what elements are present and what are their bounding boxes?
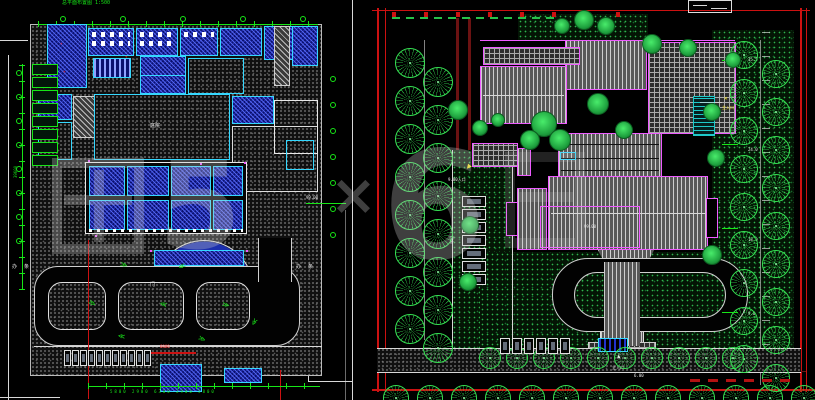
stall-item <box>462 274 486 285</box>
dim-ticks-top <box>38 21 318 27</box>
window-row <box>140 41 174 46</box>
tree-icon <box>757 385 783 400</box>
magenta-dot <box>88 160 90 162</box>
bubble-item <box>180 16 186 22</box>
parking-label: 车位 <box>450 236 454 244</box>
tree-icon <box>730 41 758 69</box>
bubble-item <box>16 190 22 196</box>
bubble-item <box>300 16 306 22</box>
stall-item <box>128 350 135 366</box>
dim-line-left <box>22 64 23 290</box>
tree-icon <box>655 385 681 400</box>
tree-icon <box>423 257 453 287</box>
tree-icon <box>574 10 594 30</box>
building-room <box>180 28 218 56</box>
bubble-item <box>330 76 336 82</box>
west-entrance-arrow-icon: ▼ <box>464 162 473 171</box>
stackblk-item <box>32 155 58 166</box>
redtick-item <box>424 12 428 17</box>
watermark-logo-glyph-partial <box>505 152 585 248</box>
tree-icon <box>423 333 453 363</box>
room-cell <box>89 200 125 230</box>
tree-icon <box>615 121 633 139</box>
room-cell <box>171 166 211 196</box>
building-hatch-strip <box>274 26 290 86</box>
courtyard <box>188 58 244 94</box>
tree-row-line-east <box>760 40 761 385</box>
outlined-room <box>286 140 314 170</box>
tree-icon <box>730 269 758 297</box>
roof-level-note: 99.00 <box>584 225 596 229</box>
red-cross-mark: + <box>125 55 127 59</box>
tree-icon <box>762 364 790 392</box>
hedge-item <box>546 17 554 19</box>
frame-red-right-2 <box>806 8 807 392</box>
stair-block-teal <box>693 96 715 136</box>
lawn-edge-line <box>512 150 513 348</box>
east-entrance-x-icon: ✕ <box>724 96 728 102</box>
dark-red-road-line <box>456 18 459 230</box>
roof-hip-fan <box>598 250 654 274</box>
stall-item <box>536 338 546 354</box>
tree-icon <box>762 60 790 88</box>
tree-icon <box>549 129 571 151</box>
building-room <box>220 28 262 56</box>
roof-joint-line <box>561 158 659 159</box>
terrace-grid <box>472 143 518 167</box>
cad-screenshot: 总平面布置图 1:500 39600 <box>0 0 815 400</box>
utility-building <box>160 364 202 392</box>
roof-inner-outline <box>540 206 640 248</box>
dark-red-road-line <box>468 18 471 230</box>
frame-red-right <box>800 8 802 392</box>
red-cross-mark: + <box>63 70 65 74</box>
flow-arrow-icon: ≫ <box>159 299 168 308</box>
pool-detail <box>560 152 576 160</box>
room-cell <box>89 166 125 196</box>
tree-icon <box>707 149 725 167</box>
window-row <box>89 229 243 232</box>
roof-stripe-mid <box>558 133 662 179</box>
bubble-item <box>330 102 336 108</box>
tree-icon <box>695 347 717 369</box>
flow-arrow-icon: ≫ <box>87 299 97 309</box>
stall-item <box>120 350 127 366</box>
flow-arrow-icon: ≫ <box>249 317 259 327</box>
tree-icon <box>417 385 443 400</box>
stackblk-item <box>32 64 58 75</box>
window-row <box>140 32 174 37</box>
red-road-mark <box>148 352 196 354</box>
tree-icon <box>423 67 453 97</box>
flow-arrow-icon: ≫ <box>197 335 207 344</box>
tree-icon <box>554 18 570 34</box>
magenta-dot <box>95 235 97 237</box>
bubble-item <box>16 94 22 100</box>
stall-item <box>462 235 486 246</box>
magenta-dot <box>200 163 202 165</box>
room-cell <box>127 200 169 230</box>
entrance-stair <box>600 274 644 344</box>
road-island <box>196 282 250 330</box>
stackblk-item <box>32 116 58 127</box>
hedge-item <box>490 17 498 19</box>
hedge-item <box>392 17 400 19</box>
stall-item <box>462 222 486 233</box>
etick-item <box>722 144 738 145</box>
sheet-border-left <box>8 55 9 400</box>
tree-icon <box>383 385 409 400</box>
stall-item <box>136 350 143 366</box>
west-entrance-label: 9.00入口 <box>448 178 466 182</box>
tree-icon <box>791 385 815 400</box>
hedge-item <box>420 17 428 19</box>
red-cross-mark: + <box>60 42 62 46</box>
stall-item <box>88 350 95 366</box>
road-island <box>48 282 106 330</box>
bubble-item <box>16 118 22 124</box>
tree-icon <box>560 347 582 369</box>
tree-icon <box>730 155 758 183</box>
watermark: 5 × 6 <box>0 0 815 400</box>
roof-joint-line <box>561 170 659 171</box>
tree-icon <box>472 120 488 136</box>
roof-stripe-nw <box>480 66 567 124</box>
roof-grid-nw <box>483 47 580 65</box>
oval-island-lawn <box>574 272 726 318</box>
bubble-item <box>330 232 336 238</box>
oval-road <box>552 258 748 332</box>
dim-line-top <box>38 24 318 25</box>
road-loop <box>34 266 300 346</box>
east-dim-3: 9.0 <box>748 312 755 316</box>
red-road-note: 6000 <box>160 345 170 349</box>
tree-icon <box>395 86 425 116</box>
tree-icon <box>689 385 715 400</box>
stamp-dash <box>711 8 727 9</box>
roof-annex <box>517 188 547 250</box>
tree-icon <box>459 273 477 291</box>
car-detail <box>598 338 628 352</box>
redtick-item <box>392 12 396 17</box>
east-lawn <box>712 30 794 348</box>
dim-ticks-bottom <box>88 383 320 389</box>
stall-item <box>548 338 558 354</box>
stackblk-item <box>32 77 58 88</box>
tree-icon <box>423 181 453 211</box>
redtick-item <box>552 12 556 17</box>
tree-icon <box>531 111 557 137</box>
tree-icon <box>762 212 790 240</box>
stall-item <box>144 350 151 366</box>
right-plan-decorations <box>0 0 815 400</box>
stall-item <box>462 196 486 207</box>
reddash-item <box>690 379 700 382</box>
red-line-lower <box>377 371 806 372</box>
road-island <box>118 282 184 330</box>
driveway-ring-fill <box>148 234 260 294</box>
stall-item <box>462 209 486 220</box>
entrance-pad <box>588 342 656 354</box>
sheet-border-right <box>352 0 353 400</box>
bubble-item <box>240 16 246 22</box>
tree-icon <box>730 79 758 107</box>
stackblk-item <box>32 129 58 140</box>
frame-red-top <box>372 10 810 11</box>
south-lawn <box>480 252 780 348</box>
reddash-item <box>708 379 718 382</box>
stackblk-item <box>32 103 58 114</box>
east-court <box>232 126 318 192</box>
stall-item <box>524 338 534 354</box>
hedge-item <box>462 17 470 19</box>
tree-icon <box>587 347 609 369</box>
road-branch <box>258 238 292 282</box>
east-dim-0: 35.5 <box>748 58 758 62</box>
entrance-canopy <box>154 250 244 266</box>
stall-item <box>80 350 87 366</box>
tree-icon <box>395 238 425 268</box>
lawn-edge-line <box>452 150 453 348</box>
tree-icon <box>485 385 511 400</box>
stamp-box <box>688 0 732 13</box>
reddash-item <box>726 379 736 382</box>
redtick-item <box>488 12 492 17</box>
label-men: 门 <box>150 283 155 288</box>
stall-item <box>104 350 111 366</box>
tree-icon <box>587 93 609 115</box>
watermark-logo-glyph <box>52 158 144 254</box>
etick-item <box>722 228 738 229</box>
sheet-corner-mark <box>0 40 28 41</box>
flow-arrow-icon: ≫ <box>119 261 128 270</box>
reddash-item <box>780 379 790 382</box>
stall-item <box>72 350 79 366</box>
magenta-dot <box>246 250 248 252</box>
stall-item <box>112 350 119 366</box>
bubble-item <box>330 154 336 160</box>
tree-icon <box>553 385 579 400</box>
titleblock-line-h <box>308 381 352 382</box>
tree-icon <box>730 345 758 373</box>
hedge-item <box>434 17 442 19</box>
dim-line-bottom <box>88 386 320 387</box>
roof-stripe-n <box>565 40 647 90</box>
east-dim-2: 18.0 <box>748 238 758 242</box>
tree-icon <box>725 52 741 68</box>
roof-grid-ne <box>648 42 736 134</box>
driveway-ring-outline-inner <box>176 262 232 294</box>
redtick-item <box>520 12 524 17</box>
red-axis-line <box>88 240 89 399</box>
side-tab-east <box>706 198 718 238</box>
tree-icon <box>395 124 425 154</box>
roof-ridge-line <box>551 213 705 214</box>
stamp-dash <box>693 5 707 6</box>
room-cell <box>213 166 243 196</box>
level-leader-line <box>306 203 346 204</box>
tree-icon <box>730 193 758 221</box>
stall-item <box>64 350 71 366</box>
site-ground-hatch <box>30 24 322 376</box>
lower-building-block <box>85 162 247 234</box>
tree-icon <box>423 219 453 249</box>
tree-icon <box>762 174 790 202</box>
hedge-item <box>406 17 414 19</box>
outlined-room <box>274 100 318 154</box>
bubble-item <box>16 214 22 220</box>
east-entrance-label: 主入口 <box>722 106 734 110</box>
room-cell <box>127 166 169 196</box>
hedge-item <box>532 17 540 19</box>
bubble-item <box>16 70 22 76</box>
flow-arrow-icon: ≫ <box>177 261 186 270</box>
road-edge-line <box>34 346 322 347</box>
dim-text-bottom: 5800 2900 6300 2900 5800 <box>110 390 216 394</box>
stall-item <box>512 338 522 354</box>
room-cell <box>171 200 211 230</box>
tree-icon <box>730 231 758 259</box>
hedge-item <box>504 17 512 19</box>
building-room <box>38 94 72 120</box>
tree-icon <box>621 385 647 400</box>
tree-icon <box>668 347 690 369</box>
roof-main-hall <box>548 176 708 250</box>
utility-building <box>224 368 262 383</box>
roof-joint-line <box>561 144 659 145</box>
east-entrance-leader <box>700 102 722 103</box>
tree-icon <box>451 385 477 400</box>
hedge-item <box>476 17 484 19</box>
room-cell <box>213 200 243 230</box>
stackblk-item <box>32 142 58 153</box>
tree-icon <box>762 288 790 316</box>
bubble-item <box>16 238 22 244</box>
tree-icon <box>520 130 540 150</box>
left-plan-decorations: ≫≫≫≫≫≫≫≫+++ <box>0 0 815 400</box>
tree-icon <box>762 326 790 354</box>
tree-icon <box>679 39 697 57</box>
stall-item <box>560 338 570 354</box>
tree-icon <box>723 385 749 400</box>
bubble-item <box>330 128 336 134</box>
courtyard-label: 庭院 <box>150 124 160 129</box>
red-axis-line-2 <box>280 370 281 400</box>
stall-item <box>462 261 486 272</box>
magenta-dot <box>150 250 152 252</box>
tree-icon <box>479 347 501 369</box>
south-road-band <box>377 348 801 372</box>
tree-icon <box>395 48 425 78</box>
south-entrance-arrow-icon: ➤ <box>616 354 625 359</box>
sheet-border-right-2 <box>345 210 346 400</box>
building-room <box>232 96 274 124</box>
tree-icon <box>395 314 425 344</box>
tree-icon <box>762 136 790 164</box>
tree-icon <box>423 105 453 135</box>
east-dim-ticks <box>762 30 770 345</box>
building-room <box>264 26 318 60</box>
building-room-large <box>47 24 87 88</box>
central-courtyard <box>94 94 230 160</box>
window-row <box>184 32 214 37</box>
building-small-room-row <box>93 58 131 78</box>
stall-item <box>500 338 510 354</box>
bubble-item <box>16 166 22 172</box>
building-room <box>136 28 178 56</box>
road-edge <box>377 348 801 349</box>
driveway-ring-outline-outer <box>154 240 254 294</box>
magenta-dot <box>244 162 246 164</box>
flow-arrow-icon: ≫ <box>221 301 230 310</box>
tree-icon <box>533 347 555 369</box>
tree-icon <box>722 347 744 369</box>
tree-icon <box>491 113 505 127</box>
watermark-digit-6: 6 <box>382 132 486 282</box>
building-room <box>140 56 186 94</box>
bubble-item <box>330 206 336 212</box>
tree-icon <box>448 100 468 120</box>
tree-row-line-west <box>424 40 425 340</box>
label-ban-2: 办 <box>296 265 301 270</box>
tree-icon <box>461 216 479 234</box>
redtick-item <box>616 12 620 17</box>
courtyard <box>38 122 72 160</box>
east-dim-1: 24.0 <box>748 148 758 152</box>
label-tiao: 条 <box>24 265 29 270</box>
watermark-glyph-5: 5 <box>158 148 242 268</box>
building-room <box>88 28 134 56</box>
tree-icon <box>395 276 425 306</box>
sheet-border-bottom <box>0 397 60 398</box>
tree-icon <box>762 98 790 126</box>
etick-item <box>722 312 738 313</box>
plan-title-note: 总平面布置图 1:500 <box>62 1 110 6</box>
titleblock-line-v <box>308 370 309 381</box>
road-edge <box>377 372 801 373</box>
watermark-times-symbol: × <box>330 168 377 224</box>
bubble-item <box>120 16 126 22</box>
stackblk-item <box>32 90 58 101</box>
tree-icon <box>730 307 758 335</box>
dim-text-left: 39600 <box>14 166 18 178</box>
window-row <box>92 32 130 37</box>
tree-icon <box>614 347 636 369</box>
south-entrance-label: 主入口 <box>612 366 624 370</box>
flow-arrow-icon: ≫ <box>117 331 125 339</box>
dim-ticks-left <box>19 64 25 290</box>
tree-icon <box>423 143 453 173</box>
stall-item <box>462 248 486 259</box>
tree-icon <box>762 250 790 278</box>
tree-icon <box>506 347 528 369</box>
tree-icon <box>519 385 545 400</box>
redtick-item <box>456 12 460 17</box>
tree-icon <box>395 162 425 192</box>
tree-icon <box>703 103 721 121</box>
tree-icon <box>597 17 615 35</box>
south-level-note: 6.00 <box>634 374 644 378</box>
ramp-hatch-wedge <box>73 96 115 138</box>
tree-icon <box>395 200 425 230</box>
hedge-item <box>448 17 456 19</box>
etick-item <box>722 60 738 61</box>
label-ban: 办 <box>12 265 17 270</box>
bubble-item <box>16 142 22 148</box>
frame-red-bottom <box>372 389 815 391</box>
reddash-item <box>762 379 772 382</box>
building-north-edge <box>480 40 735 41</box>
